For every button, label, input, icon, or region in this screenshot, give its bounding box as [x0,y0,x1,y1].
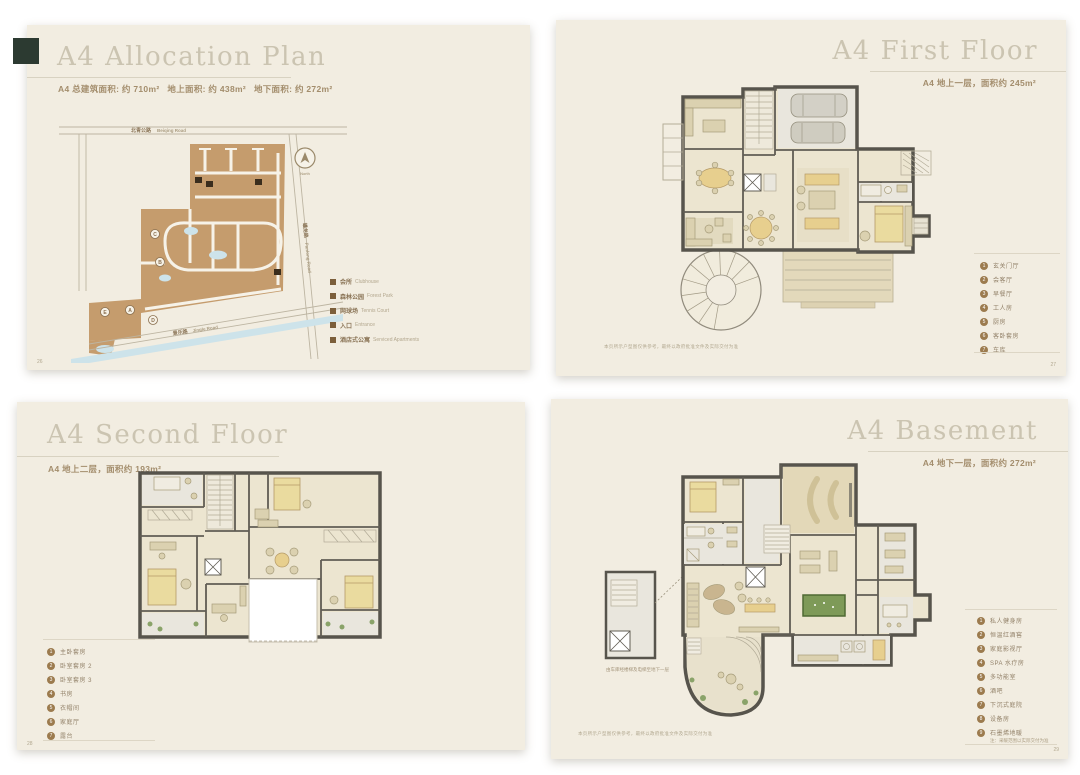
legend-item: 2恒温红酒窖 [977,630,1049,639]
legend-label: 会客厅 [993,275,1013,284]
legend-item: 1玄关门厅 [980,261,1019,270]
title-underline [870,71,1066,72]
legend-label: 衣帽间 [60,703,80,712]
car-icon [791,122,845,143]
legend-rule-bottom [43,740,155,741]
site-map: 北青公路Beiqing Road 蟠龙路Panlong Road 景乐路Jing… [53,113,353,363]
study-room [686,218,733,246]
legend-label: 恒温红酒窖 [990,630,1023,639]
page-title: A4 Allocation Plan [57,42,326,72]
entrance-icon [330,322,336,328]
legend-label-cn: 森林公园 [340,292,364,301]
legend-number-badge: 6 [977,687,985,695]
terrace [783,250,893,308]
legend-rule-bottom [974,352,1060,353]
legend-item: 3早餐厅 [980,289,1019,298]
disclaimer: 本页所示户型图仅供参考，最终以政府批准文件及实际交付为准 [604,344,738,350]
legend-number-badge: 2 [977,631,985,639]
legend-item: 9石墨烯地暖 [977,728,1049,737]
legend-label: 书房 [60,689,73,698]
legend-number-badge: 5 [977,673,985,681]
second-floor-plan [110,464,420,704]
page-number: 27 [1050,362,1056,368]
road-label-top-cn: 北青公路Beiqing Road [131,127,186,134]
plot-marker-a: A [128,308,132,314]
staircase [745,91,773,149]
room-legend: 1主卧套房 2卧室套房 2 3卧室套房 3 4书房 5衣帽间 6家庭厅 7露台 [47,647,92,745]
legend-item: 酒店式公寓Serviced Apartments [330,335,419,344]
legend-label: 客卧套房 [993,331,1019,340]
page-title: A4 First Floor [832,36,1038,66]
legend-label: 设备房 [990,714,1010,723]
legend-label-en: Clubhouse [355,279,379,285]
legend-label: 酒吧 [990,686,1003,695]
legend-label: 露台 [60,731,73,740]
page-basement: A4 Basement A4 地下一层，面积约 272m² [551,399,1068,759]
community-area [89,144,285,356]
legend-item: 网球场Tennis Court [330,306,419,315]
map-legend: 会所Clubhouse 森林公园Forest Park 网球场Tennis Co… [330,277,419,350]
legend-rule-bottom [965,744,1057,745]
legend-number-badge: 4 [980,304,988,312]
legend-label: 卧室套房 3 [60,675,92,684]
legend-number-badge: 6 [980,332,988,340]
legend-item: 6酒吧 [977,686,1049,695]
legend-item: 森林公园Forest Park [330,292,419,301]
bathroom [859,183,912,201]
room-legend: 1私人健身房 2恒温红酒窖 3家庭影视厅 4SPA 水疗房 5多功能室 6酒吧 … [977,616,1049,744]
legend-label-en: Forest Park [367,293,393,299]
legend-number-badge: 3 [980,290,988,298]
north-compass-icon: North [295,148,315,176]
room-legend: 1玄关门厅 2会客厅 3早餐厅 4工人房 5厨房 6客卧套房 7车库 [980,261,1019,359]
legend-label: 家庭影视厅 [990,644,1023,653]
legend-label: 家庭厅 [60,717,80,726]
title-underline [27,77,291,78]
legend-label: 早餐厅 [993,289,1013,298]
elevator [205,559,221,575]
road-label-bottom-cn: 景乐路Jingle Road [172,324,218,337]
billiard-table [803,595,845,616]
legend-number-badge: 2 [47,662,55,670]
legend-number-badge: 2 [980,276,988,284]
legend-number-badge: 7 [47,732,55,740]
bathroom [684,524,742,564]
legend-label-cn: 入口 [340,321,352,330]
legend-item: 5衣帽间 [47,703,92,712]
legend-item: 入口Entrance [330,321,419,330]
legend-label: 主卧套房 [60,647,86,656]
legend-label-cn: 会所 [340,277,352,286]
legend-number-badge: 1 [977,617,985,625]
legend-number-badge: 9 [977,729,985,737]
powder-room [764,174,776,191]
page-subtitle: A4 总建筑面积: 约 710m² 地上面积: 约 438m² 地下面积: 约 … [58,83,332,95]
legend-label: 工人房 [993,303,1013,312]
legend-rule-top [974,253,1060,254]
legend-item: 5厨房 [980,317,1019,326]
plot-marker-c: C [153,232,157,238]
basement-plan [593,455,943,755]
bay-window [663,124,683,180]
page-title: A4 Basement [847,416,1038,446]
car-icon [791,94,847,117]
legend-item: 3家庭影视厅 [977,644,1049,653]
legend-rule-top [965,609,1057,610]
legend-number-badge: 5 [980,318,988,326]
staircase [207,475,233,529]
legend-number-badge: 7 [977,701,985,709]
void-open-to-below [249,579,317,642]
legend-item: 会所Clubhouse [330,277,419,286]
legend-item: 7露台 [47,731,92,740]
legend-number-badge: 6 [47,718,55,726]
living-room [797,168,849,242]
page-allocation-plan: A4 Allocation Plan A4 总建筑面积: 约 710m² 地上面… [27,25,530,370]
legend-number-badge: 3 [47,676,55,684]
spiral-staircase [681,250,761,330]
serviced-apartments-icon [330,337,336,343]
road-label-right-cn: 蟠龙路Panlong Road [301,222,313,273]
legend-number-badge: 1 [980,262,988,270]
utility-room [794,636,890,664]
legend-label: 私人健身房 [990,616,1023,625]
legend-item: 4工人房 [980,303,1019,312]
legend-number-badge: 1 [47,648,55,656]
legend-item: 1私人健身房 [977,616,1049,625]
legend-number-badge: 5 [47,704,55,712]
screen [849,483,852,517]
legend-item: 2卧室套房 2 [47,661,92,670]
connector-dashed-line [655,576,683,603]
page-first-floor: A4 First Floor A4 地上一层，面积约 245m² [556,20,1066,376]
legend-number-badge: 3 [977,645,985,653]
brand-logo [13,38,39,64]
clubhouse-icon [330,279,336,285]
legend-number-badge: 4 [977,659,985,667]
plot-marker-d: D [151,318,155,324]
elevator [744,174,761,191]
legend-item: 4SPA 水疗房 [977,658,1049,667]
annex-caption: 由车库经楼梯及电梯至地下一层 [606,667,716,673]
legend-item: 2会客厅 [980,275,1019,284]
legend-item: 8设备房 [977,714,1049,723]
page-title: A4 Second Floor [47,420,288,450]
legend-label-en: Entrance [355,322,375,328]
annex-stair-elevator [606,572,655,658]
legend-label: 下沉式庭院 [990,700,1023,709]
legend-number-badge: 8 [977,715,985,723]
title-underline [17,456,279,457]
spa-room [880,597,913,633]
garage [778,89,855,148]
legend-label: 厨房 [993,317,1006,326]
title-underline [868,451,1068,452]
legend-number-badge: 4 [47,690,55,698]
staircase [764,525,790,553]
legend-item: 6客卧套房 [980,331,1019,340]
legend-label-en: Serviced Apartments [373,337,419,343]
legend-item: 5多功能室 [977,672,1049,681]
legend-label: 卧室套房 2 [60,661,92,670]
legend-label: 玄关门厅 [993,261,1019,270]
legend-rule-top [43,639,155,640]
page-number: 28 [27,741,33,747]
svg-text:North: North [300,171,310,176]
first-floor-plan [651,78,956,354]
page-second-floor: A4 Second Floor A4 地上二层，面积约 193m² [17,402,525,750]
page-number: 26 [37,359,43,365]
legend-label: SPA 水疗房 [990,658,1024,667]
forest-park-icon [330,293,336,299]
legend-label-cn: 酒店式公寓 [340,335,370,344]
legend-label: 多功能室 [990,672,1016,681]
legend-label-cn: 网球场 [340,306,358,315]
master-bathroom [142,475,202,505]
tennis-court-icon [330,308,336,314]
disclaimer: 本页所示户型图仅供参考，最终以政府批准文件及实际交付为准 [578,731,712,737]
legend-item: 1主卧套房 [47,647,92,656]
plot-marker-b: B [158,260,162,266]
gym [880,527,913,578]
legend-item: 3卧室套房 3 [47,675,92,684]
home-theater [783,467,854,533]
breakfast-table [744,211,779,246]
page-number: 29 [1053,747,1059,753]
legend-item: 6家庭厅 [47,717,92,726]
legend-item: 7下沉式庭院 [977,700,1049,709]
elevator [746,567,765,587]
legend-label: 石墨烯地暖 [990,728,1023,737]
legend-label-en: Tennis Court [361,308,389,314]
legend-item: 4书房 [47,689,92,698]
